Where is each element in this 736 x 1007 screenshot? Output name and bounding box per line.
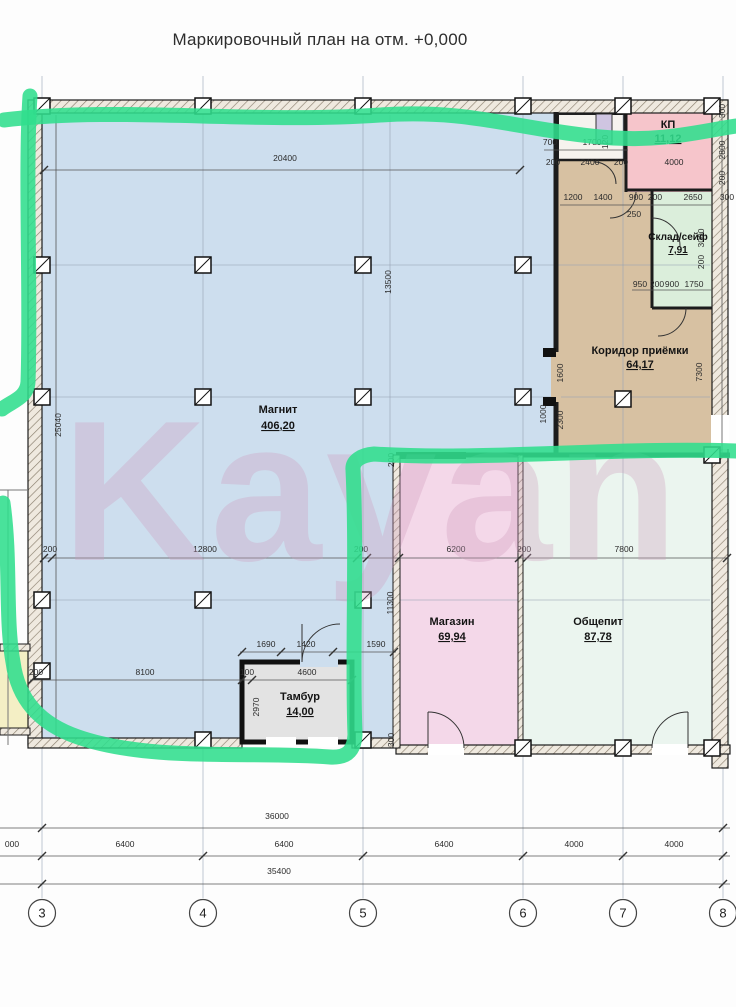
axis-number: 3: [38, 906, 45, 921]
dimension-label: 4000: [665, 157, 684, 167]
label-tambur-name: Тамбур: [280, 691, 320, 703]
dimension-label: 8100: [136, 667, 155, 677]
axis-number: 7: [619, 906, 626, 921]
label-koridor-area: 64,17: [626, 359, 654, 371]
door-frame-top: [543, 348, 556, 357]
dimension-label: 2800: [717, 140, 727, 159]
dimension-label: 000: [5, 839, 19, 849]
dimension-label: 250: [627, 209, 641, 219]
dimension-label: 200: [43, 544, 57, 554]
dimension-label: 200: [648, 192, 662, 202]
dimension-label: 950: [633, 279, 647, 289]
door-gap-obshepit: [652, 744, 688, 755]
door-gap-tambur-b2: [308, 737, 338, 747]
dimension-label: 900: [665, 279, 679, 289]
dimension-label: 1200: [564, 192, 583, 202]
dimension-label: 6400: [275, 839, 294, 849]
dimension-label: 13500: [383, 270, 393, 294]
dimension-label: 1590: [367, 639, 386, 649]
dimension-label: 200: [696, 255, 706, 269]
label-sklad-area: 7,91: [668, 245, 688, 256]
axis-number: 8: [719, 906, 726, 921]
dimension-label: 1420: [297, 639, 316, 649]
dimension-label: 2400: [581, 157, 600, 167]
wall-yellow-bottom: [0, 728, 30, 735]
dimension-label: 2650: [684, 192, 703, 202]
dimension-label: 4000: [565, 839, 584, 849]
door-gap-tambur-b1: [266, 737, 296, 747]
dimension-label: 900: [629, 192, 643, 202]
dimension-label: 1400: [594, 192, 613, 202]
label-magazin-name: Магазин: [429, 616, 474, 628]
dimension-label: 200: [717, 171, 727, 185]
dimension-label: 100: [240, 667, 254, 677]
dimension-label: 1690: [257, 639, 276, 649]
label-magazin-area: 69,94: [438, 631, 466, 643]
dimension-label: 4000: [665, 839, 684, 849]
door-gap-tambur-top: [300, 657, 338, 667]
axis-number: 6: [519, 906, 526, 921]
dimension-label: 200: [546, 157, 560, 167]
dimension-label: 300: [717, 104, 727, 118]
marker-stroke-left-upper: [2, 96, 30, 409]
dimension-label: 2970: [251, 697, 261, 716]
door-gap-magazin: [428, 744, 464, 755]
axis-bubbles: 345678: [29, 900, 736, 927]
label-obshepit-area: 87,78: [584, 631, 612, 643]
dimension-label: 6400: [116, 839, 135, 849]
axis-number: 4: [199, 906, 206, 921]
label-obshepit-name: Общепит: [573, 616, 623, 628]
label-koridor-name: Коридор приёмки: [591, 345, 688, 357]
dimension-label: 6400: [435, 839, 454, 849]
dimension-label: 35400: [267, 866, 291, 876]
label-tambur-area: 14,00: [286, 706, 314, 718]
dimension-label: 300: [720, 192, 734, 202]
dimension-label: 200: [29, 667, 43, 677]
dimension-label: 300: [386, 733, 396, 747]
dimension-label: 200: [614, 157, 628, 167]
axis-number: 5: [359, 906, 366, 921]
dimension-label: 200: [650, 279, 664, 289]
dimension-label: 4600: [298, 667, 317, 677]
dimension-label: 7300: [694, 362, 704, 381]
floor-plan-drawing: 2040013500250402001280020062002007800200…: [0, 0, 736, 1007]
dimension-label: 1750: [685, 279, 704, 289]
dimension-label: 20400: [273, 153, 297, 163]
dimension-label: 36000: [265, 811, 289, 821]
watermark-text: Kayan: [62, 380, 682, 603]
label-sklad-name: Склад/сейф: [648, 231, 708, 243]
floor-plan-page: Маркировочный план на отм. +0,000: [0, 0, 736, 1007]
